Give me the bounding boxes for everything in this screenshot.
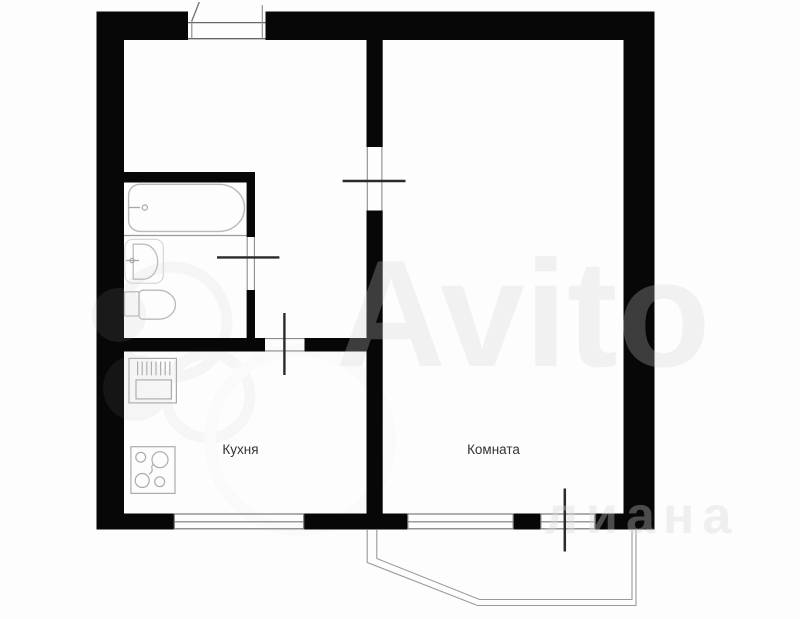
svg-text:Комната: Комната — [467, 442, 520, 457]
svg-text:лиана: лиана — [545, 487, 739, 545]
svg-text:Avito: Avito — [336, 229, 710, 399]
svg-text:Кухня: Кухня — [222, 442, 258, 457]
